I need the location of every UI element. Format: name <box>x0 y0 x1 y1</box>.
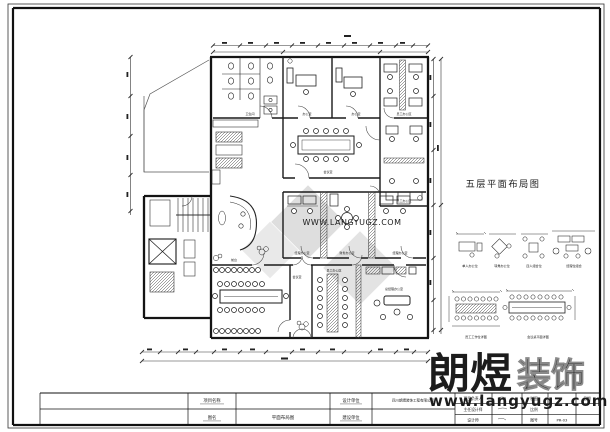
project-name-label: 项目名称 <box>203 397 221 404</box>
top-dim-ticks <box>211 44 430 55</box>
office-a-furniture <box>287 59 316 95</box>
watermark-brand-light: 装饰 <box>517 356 585 396</box>
office-b-furniture <box>336 68 362 97</box>
sheet-no-value: PR-03 <box>557 417 569 422</box>
legend-vignette-4 <box>552 231 595 258</box>
legend-label-3: 四人组合位 <box>526 263 541 268</box>
legend-label-detail-left: 员工工作位详图 <box>465 334 487 339</box>
label-ws-bottom: 员工办公区 <box>326 268 341 273</box>
legend-labels: 单人办公位 转角办公位 四人组合位 经理位组合 员工工作位详图 会议桌平面详图 <box>462 263 581 339</box>
watermark-brand-bold: 朗煜 <box>428 349 512 398</box>
large-conference-chairs <box>213 268 289 334</box>
top-dim-numbers <box>222 35 405 44</box>
designer-label: 设计师 <box>467 417 479 422</box>
label-office-a: 办公室 <box>302 111 311 116</box>
sheet-no-label: 图号 <box>530 417 538 422</box>
legend-label-4: 经理位组合 <box>566 263 581 268</box>
label-ws-top: 员工办公区 <box>396 111 411 116</box>
label-meeting-center: 会议室 <box>323 169 332 174</box>
drawing-name-value: 平面布局图 <box>272 414 295 421</box>
elevator <box>149 239 176 264</box>
brand-watermark: 朗煜 装饰 www.langyugz.com <box>428 349 608 410</box>
drawing-name-label: 图名 <box>208 414 217 421</box>
watermark-url: www.langyugz.com <box>429 392 608 410</box>
label-manager-2: 经理办公室 <box>392 250 407 255</box>
legend-vignette-3 <box>521 234 548 258</box>
legend-label-1: 单人办公位 <box>462 263 477 268</box>
large-conference-room <box>213 268 289 334</box>
cad-sheet: WWW.LANGYUGZ.COM <box>0 0 610 432</box>
left-dim-numbers <box>127 72 129 197</box>
right-dim-numbers <box>430 75 439 285</box>
label-ws-right: 员工办公区 <box>396 198 411 203</box>
stairs <box>176 198 210 232</box>
conference-detail-vignette <box>503 289 575 320</box>
label-reception: 前台 <box>231 257 237 262</box>
label-meeting-large: 会议室 <box>292 274 301 279</box>
terrace-outline <box>144 60 209 172</box>
legend-vignette-1 <box>456 232 486 257</box>
toilet-room <box>222 57 277 118</box>
cabinets-center-left <box>212 120 258 184</box>
legend-vignette-2 <box>489 234 516 258</box>
label-gm-office: 总经理办公室 <box>385 286 403 291</box>
construction-unit-label: 建设单位 <box>342 414 360 421</box>
label-finance: 财务办公室 <box>339 250 354 255</box>
plan-title: 五层平面布局图 <box>466 178 541 190</box>
bottom-dim-numbers <box>147 349 409 360</box>
legend-label-2: 转角办公位 <box>494 263 509 268</box>
workstation-detail-vignette <box>449 290 502 326</box>
conference-chairs <box>291 129 362 162</box>
right-panel: 五层平面布局图 单人办公位 转角办公位 四人组合位 经理位组合 <box>449 178 595 339</box>
plant-scribble-corridor <box>297 321 308 330</box>
label-toilet: 卫生间 <box>245 111 254 116</box>
floor-plan-drawing: WWW.LANGYUGZ.COM <box>0 0 610 432</box>
label-manager-1: 经理办公室 <box>294 250 309 255</box>
conference-room-center <box>291 129 362 162</box>
label-office-b: 办公室 <box>351 111 360 116</box>
legend-label-detail-right: 会议桌平面详图 <box>527 334 549 339</box>
design-unit-label: 设计单位 <box>342 397 360 404</box>
